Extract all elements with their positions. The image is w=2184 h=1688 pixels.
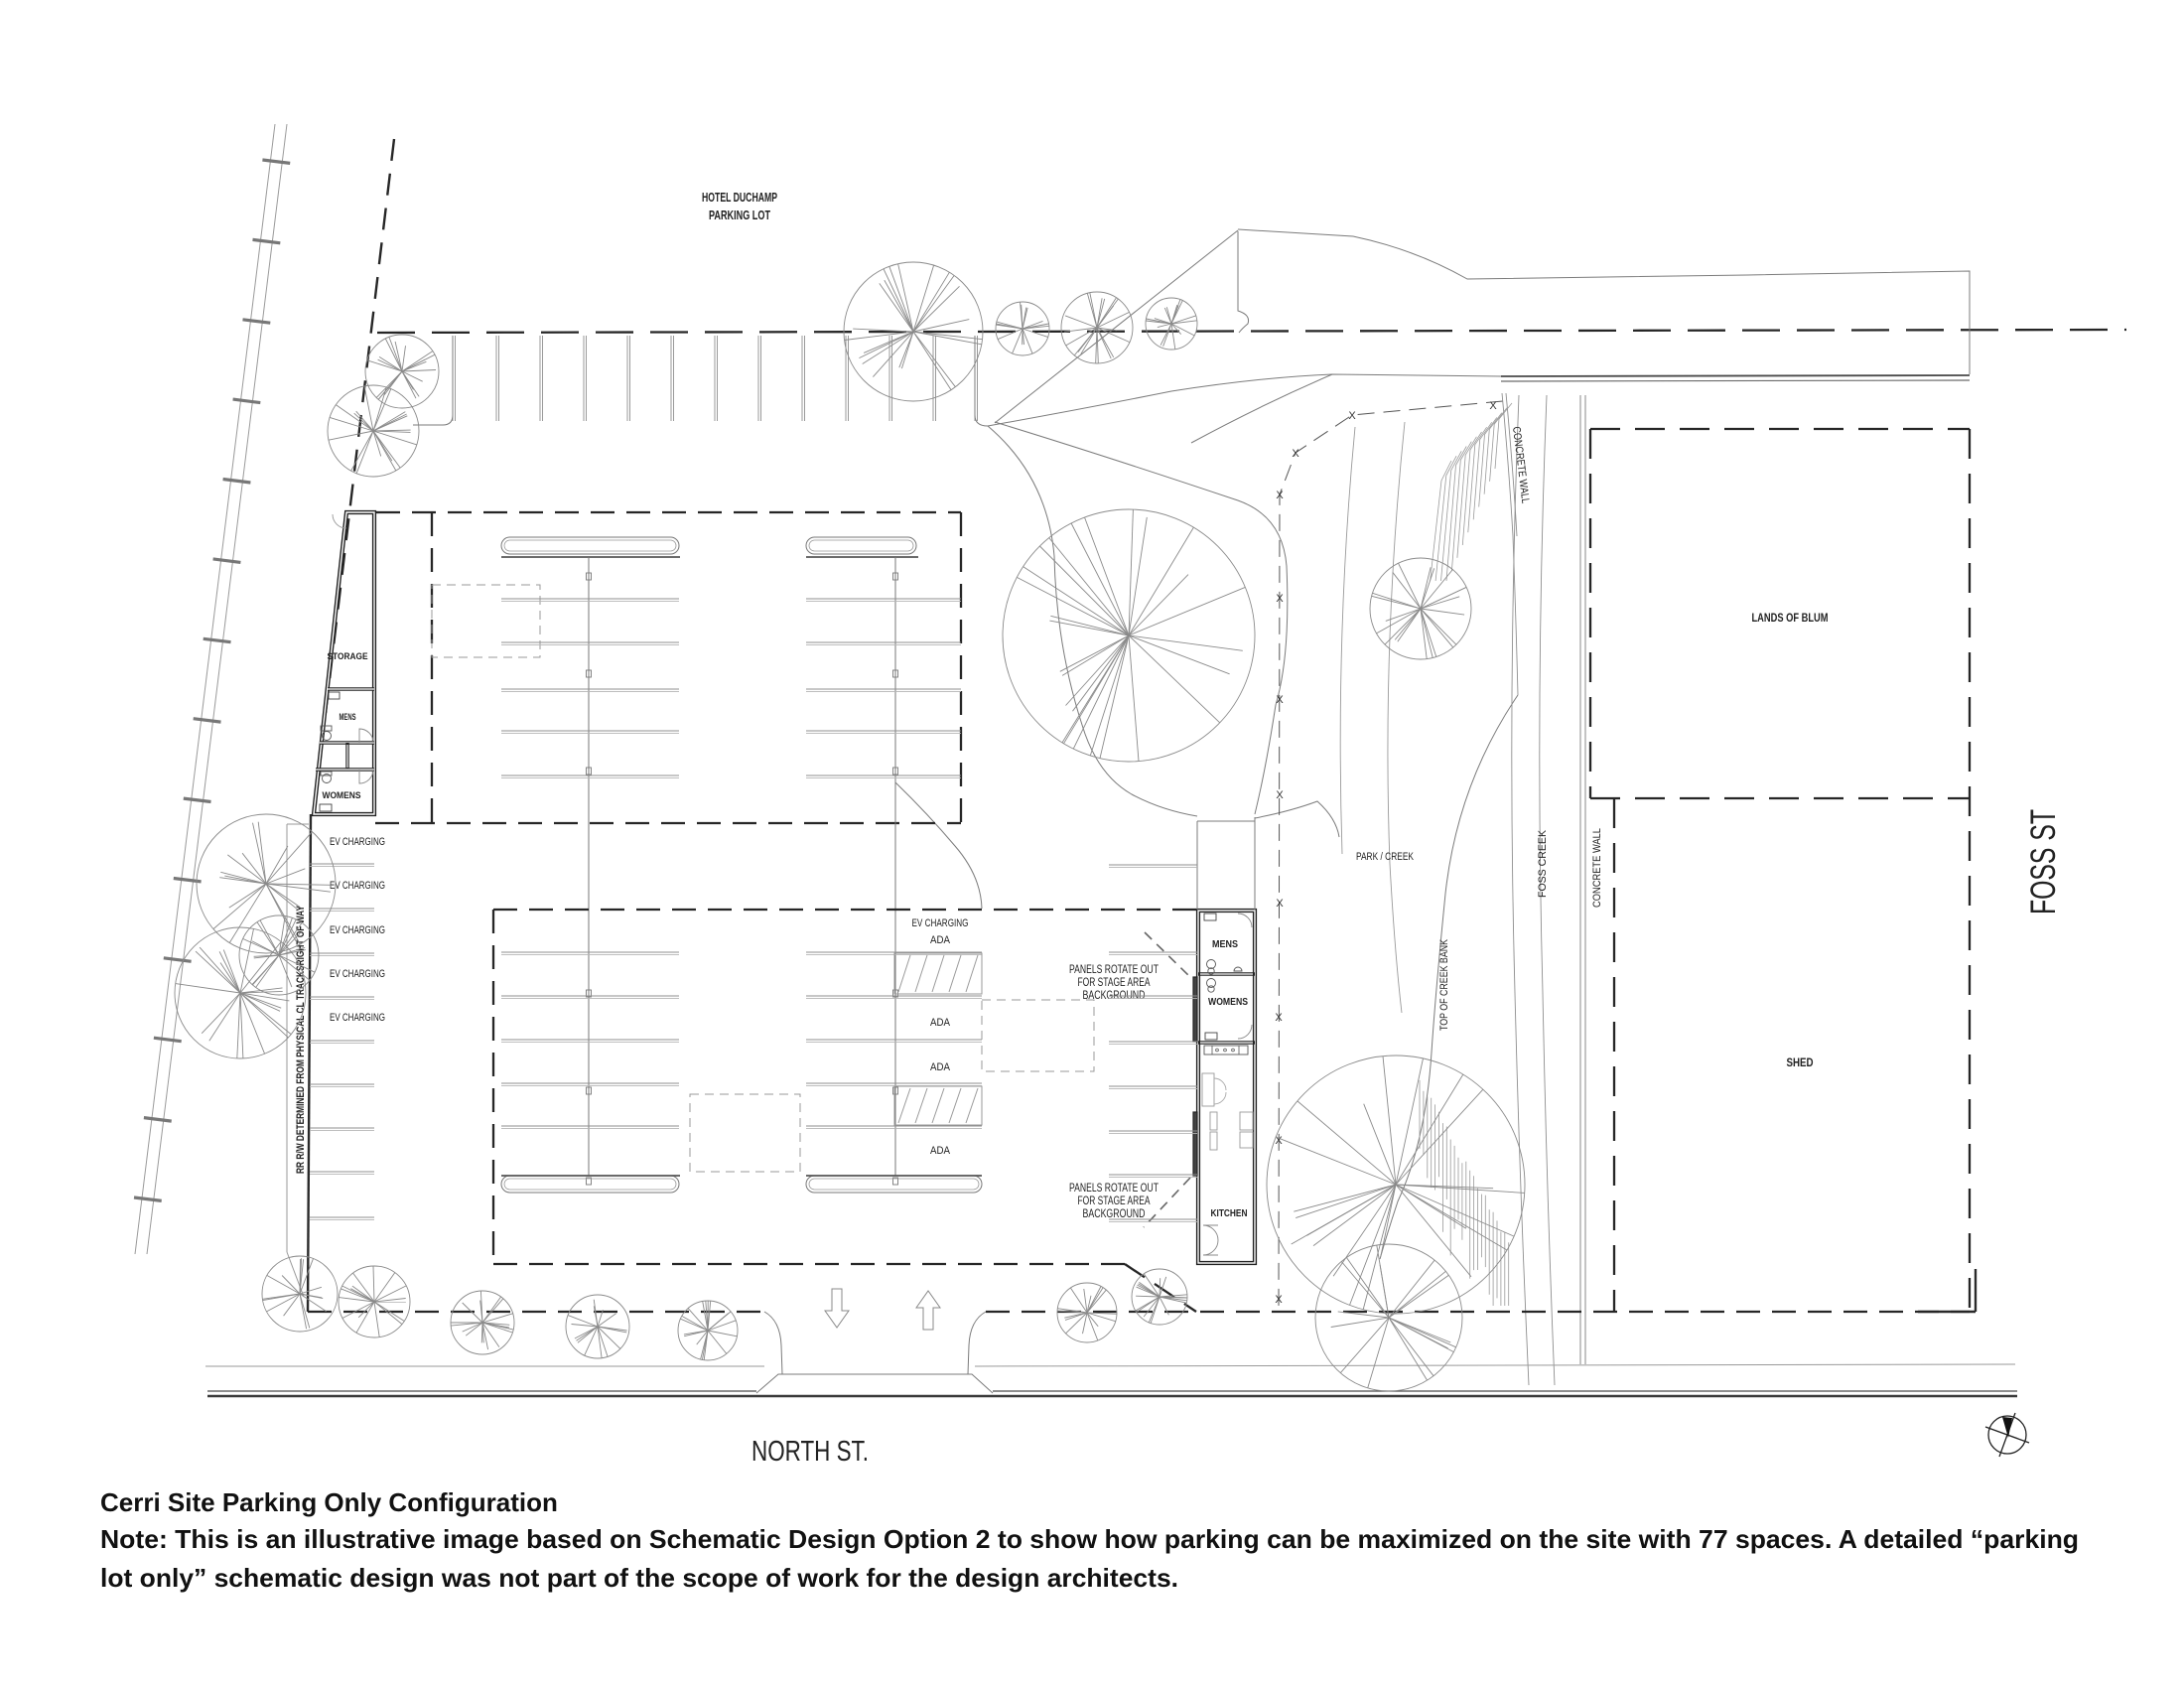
svg-text:MENS: MENS <box>1212 939 1238 950</box>
svg-text:ADA: ADA <box>930 1145 951 1157</box>
svg-text:FOSS CREEK: FOSS CREEK <box>1537 829 1549 898</box>
svg-text:RR R/W DETERMINED FROM PHYSICA: RR R/W DETERMINED FROM PHYSICAL CL TRACK… <box>295 906 307 1174</box>
svg-text:X: X <box>1275 1294 1283 1306</box>
svg-text:WOMENS: WOMENS <box>1208 997 1248 1008</box>
svg-text:Cerri Site Parking Only Config: Cerri Site Parking Only Configuration <box>100 1487 558 1517</box>
svg-text:LANDS OF BLUM: LANDS OF BLUM <box>1752 613 1829 625</box>
svg-text:PANELS ROTATE OUT: PANELS ROTATE OUT <box>1069 1183 1159 1195</box>
svg-text:FOSS ST: FOSS ST <box>2024 809 2063 914</box>
svg-text:EV CHARGING: EV CHARGING <box>330 924 385 936</box>
svg-text:EV CHARGING: EV CHARGING <box>330 836 385 848</box>
svg-text:EV CHARGING: EV CHARGING <box>330 968 385 980</box>
svg-text:NORTH ST.: NORTH ST. <box>751 1436 869 1468</box>
svg-text:X: X <box>1276 490 1284 501</box>
svg-text:SHED: SHED <box>1787 1057 1814 1069</box>
svg-text:EV CHARGING: EV CHARGING <box>330 1012 385 1024</box>
svg-text:lot only” schematic design was: lot only” schematic design was not part … <box>100 1563 1178 1593</box>
svg-text:PARKING LOT: PARKING LOT <box>709 208 770 222</box>
svg-text:PANELS ROTATE OUT: PANELS ROTATE OUT <box>1069 964 1159 976</box>
svg-text:EV CHARGING: EV CHARGING <box>330 880 385 892</box>
svg-text:Note: This is an illustrative: Note: This is an illustrative image base… <box>100 1524 2079 1554</box>
svg-text:X: X <box>1276 593 1284 605</box>
svg-text:STORAGE: STORAGE <box>328 651 368 662</box>
svg-text:X: X <box>1276 898 1284 910</box>
svg-text:ADA: ADA <box>930 934 951 946</box>
svg-text:WOMENS: WOMENS <box>323 790 361 800</box>
svg-text:MENS: MENS <box>340 712 356 722</box>
svg-text:X: X <box>1348 410 1356 422</box>
svg-text:FOR STAGE AREA: FOR STAGE AREA <box>1078 977 1151 989</box>
svg-text:HOTEL DUCHAMP: HOTEL DUCHAMP <box>702 190 777 205</box>
svg-text:TOP OF CREEK BANK: TOP OF CREEK BANK <box>1438 938 1450 1031</box>
svg-text:X: X <box>1276 694 1284 706</box>
svg-text:ADA: ADA <box>930 1017 951 1029</box>
svg-text:BACKGROUND: BACKGROUND <box>1083 1208 1146 1220</box>
svg-text:CONCRETE WALL: CONCRETE WALL <box>1591 828 1603 908</box>
svg-text:X: X <box>1276 789 1284 801</box>
svg-text:EV CHARGING: EV CHARGING <box>912 917 969 929</box>
svg-text:KITCHEN: KITCHEN <box>1211 1208 1248 1219</box>
svg-text:FOR STAGE AREA: FOR STAGE AREA <box>1078 1196 1151 1207</box>
svg-text:ADA: ADA <box>930 1061 951 1073</box>
svg-text:X: X <box>1489 400 1497 412</box>
svg-text:PARK / CREEK: PARK / CREEK <box>1356 851 1414 863</box>
svg-text:X: X <box>1275 1012 1283 1024</box>
svg-text:X: X <box>1292 448 1299 460</box>
